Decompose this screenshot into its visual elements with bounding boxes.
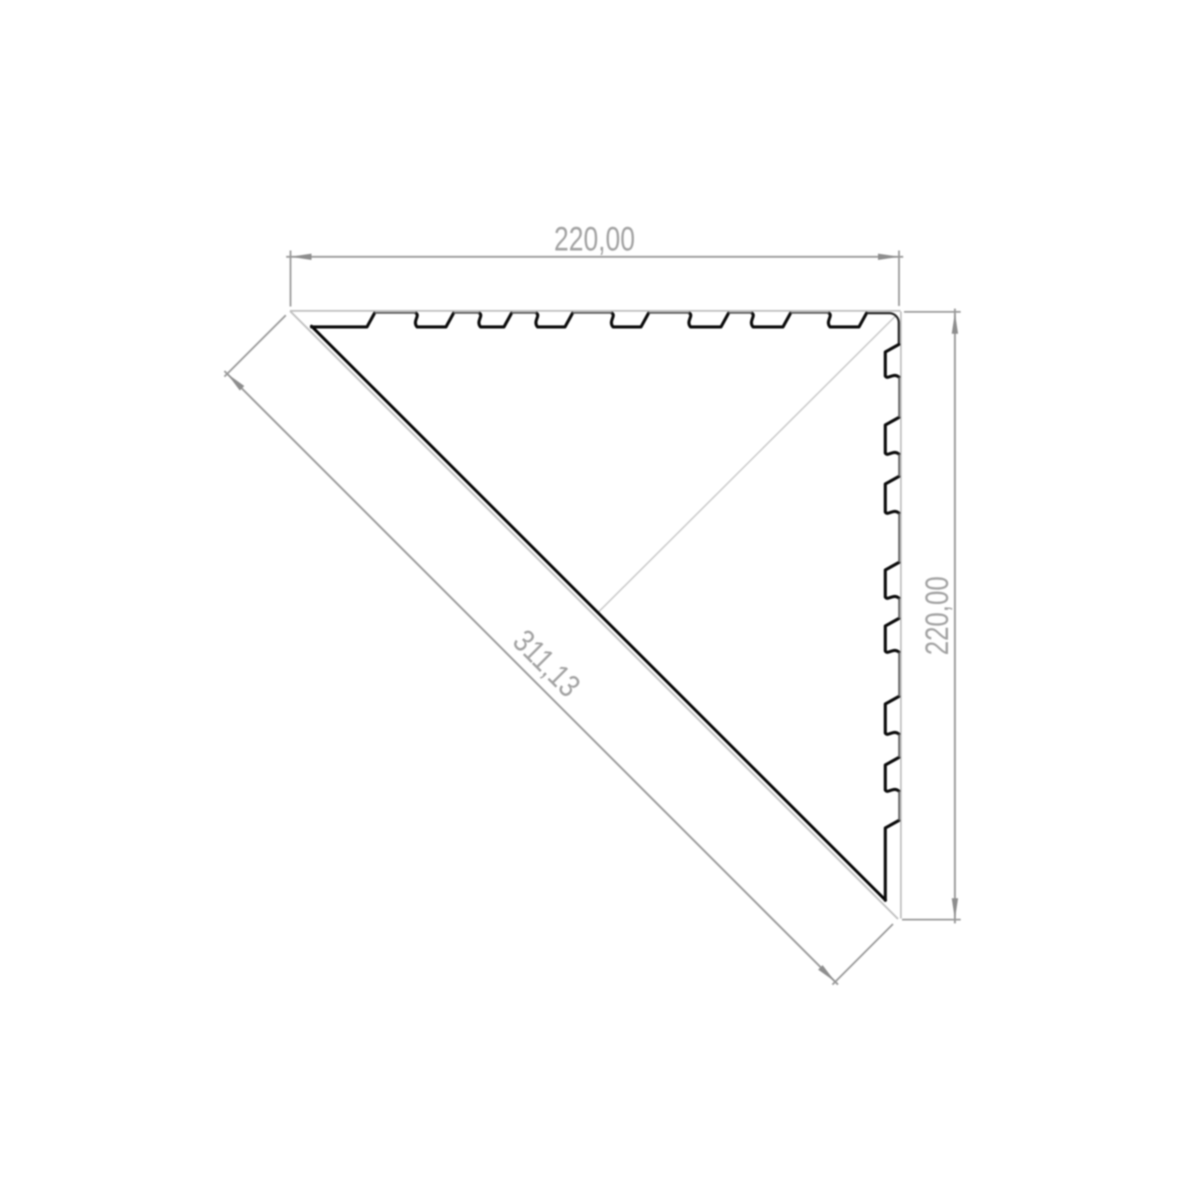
svg-text:220,00: 220,00	[554, 221, 635, 259]
svg-text:220,00: 220,00	[919, 576, 955, 655]
